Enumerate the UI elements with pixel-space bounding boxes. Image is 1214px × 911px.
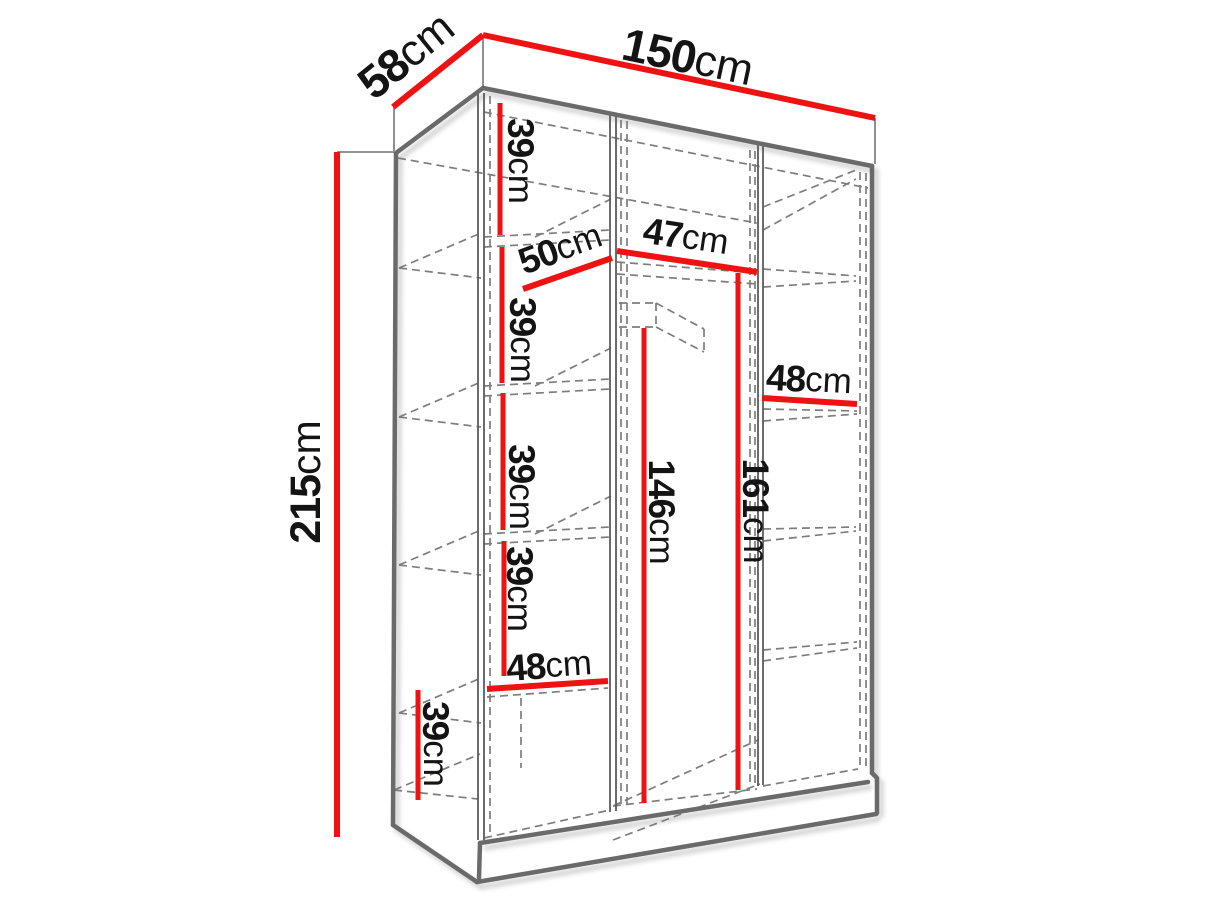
- interior-hidden-lines: [394, 96, 868, 840]
- bottom-left-slope: [393, 825, 477, 882]
- dim-label-partition-height: 161cm: [736, 458, 777, 563]
- dim-label-shelf-3: 39cm: [502, 444, 543, 530]
- plinth-bottom-edge: [477, 814, 876, 882]
- dim-label-bottom-shelf: 39cm: [416, 701, 457, 787]
- dim-label-shelf-2: 39cm: [503, 297, 544, 383]
- dim-label-hanging-height: 146cm: [642, 459, 683, 564]
- edge-shadows: [397, 93, 881, 887]
- left-outer-edge: [393, 153, 396, 825]
- dim-label-right-width: 48cm: [765, 356, 853, 401]
- dim-label-left-width: 48cm: [505, 642, 593, 689]
- dimension-labels: 150cm 58cm 215cm 39cm 50cm 47cm 39cm 48c…: [282, 1, 853, 787]
- plinth-left-edge: [479, 843, 480, 878]
- plinth-top-edge: [480, 782, 868, 843]
- dim-label-overall-height: 215cm: [282, 420, 330, 543]
- diagram-canvas: 150cm 58cm 215cm 39cm 50cm 47cm 39cm 48c…: [0, 0, 1214, 911]
- dim-label-shelf-4: 39cm: [500, 546, 541, 632]
- wardrobe-dimension-diagram: 150cm 58cm 215cm 39cm 50cm 47cm 39cm 48c…: [0, 0, 1214, 911]
- carcass-outline: [393, 88, 877, 882]
- dim-label-shelf-1: 39cm: [501, 118, 542, 204]
- dim-label-overall-width: 150cm: [618, 18, 758, 96]
